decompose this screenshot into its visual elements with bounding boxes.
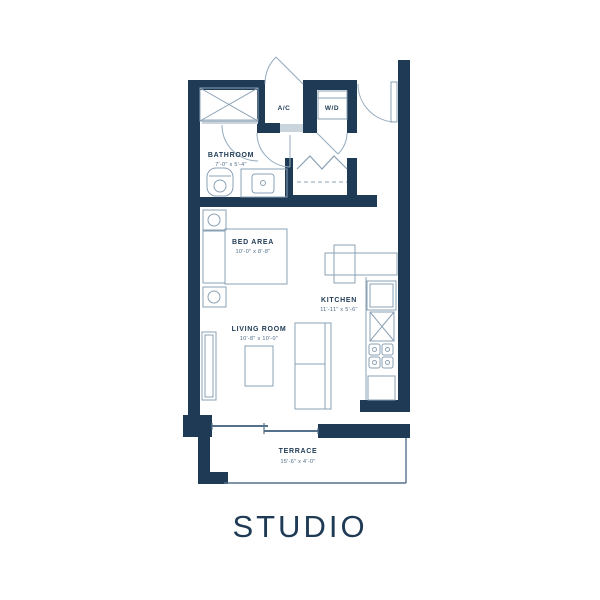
ac-door-leaf xyxy=(276,57,303,84)
kitchen-island xyxy=(325,253,397,275)
tv-console-inner xyxy=(205,335,213,397)
closet-hanging-rod xyxy=(297,156,347,169)
terrace-dims: 15'-6" x 4'-0" xyxy=(281,459,316,465)
bed-area-dims: 10'-0" x 8'-8" xyxy=(236,249,271,255)
wall-terrace-foot xyxy=(210,472,228,484)
wall-kitchen-stub xyxy=(360,400,410,412)
vanity-drain xyxy=(261,181,266,186)
bed-headboard xyxy=(203,231,225,283)
burner-1 xyxy=(369,344,380,355)
burner-2 xyxy=(382,344,393,355)
floorplan-page: BATHROOM 7'-0" x 5'-4" A/C W/D BED AREA … xyxy=(0,0,600,600)
floorplan-drawing: BATHROOM 7'-0" x 5'-4" A/C W/D BED AREA … xyxy=(0,0,600,600)
burner-4 xyxy=(382,357,393,368)
bathroom-fixtures xyxy=(200,88,287,197)
wall-closet-bottom-run xyxy=(285,195,377,207)
fridge xyxy=(367,281,396,310)
fridge-inner xyxy=(370,284,393,307)
entry-door-arc xyxy=(358,84,396,122)
kitchen-label: KITCHEN xyxy=(321,297,357,304)
base-cabinet xyxy=(368,376,395,400)
wall-left xyxy=(188,80,200,420)
nightstand-top xyxy=(203,210,226,230)
kitchen-island-cross xyxy=(334,245,355,283)
bathroom-label: BATHROOM xyxy=(208,152,254,159)
coffee-table xyxy=(245,346,273,386)
ac-door-arc xyxy=(265,57,276,84)
wall-right xyxy=(398,60,410,412)
kitchen-fixtures xyxy=(325,245,397,400)
entry-door-leaf xyxy=(391,82,397,122)
nightstand-top-lamp xyxy=(208,214,220,226)
burner-4-ring xyxy=(386,361,390,365)
wd-door-arc xyxy=(338,133,347,154)
living-room-dims: 10'-8" x 10'-0" xyxy=(240,336,278,342)
wd-closet-label: W/D xyxy=(325,105,339,112)
toilet-bowl xyxy=(214,180,226,192)
bed-area-label: BED AREA xyxy=(232,239,274,246)
wall-closet-right xyxy=(347,158,357,205)
wall-terrace-left xyxy=(198,437,210,484)
tv-console xyxy=(202,332,216,400)
nightstand-bottom-lamp xyxy=(208,291,220,303)
wall-ac-wd-divider xyxy=(303,80,317,133)
threshold-ac xyxy=(280,124,303,132)
wd-door-leaf xyxy=(317,133,338,154)
wall-wd-right-post xyxy=(347,80,357,133)
bed-furniture xyxy=(203,210,287,307)
wall-bathroom-bed xyxy=(188,197,293,207)
bed-mattress xyxy=(225,229,287,284)
wall-bottom-right xyxy=(318,424,410,438)
kitchen-dims: 11'-11" x 5'-6" xyxy=(320,307,358,313)
burner-3-ring xyxy=(373,361,377,365)
vanity-sink xyxy=(252,174,274,193)
page-title: STUDIO xyxy=(232,509,367,544)
ac-closet-label: A/C xyxy=(278,105,291,112)
burner-1-ring xyxy=(373,348,377,352)
nightstand-bottom xyxy=(203,287,226,307)
bathroom-dims: 7'-0" x 5'-4" xyxy=(215,162,247,168)
wall-corner-block xyxy=(183,415,212,437)
living-room-label: LIVING ROOM xyxy=(232,326,287,333)
terrace-label: TERRACE xyxy=(279,448,318,455)
burner-2-ring xyxy=(386,348,390,352)
sofa xyxy=(295,323,331,409)
wall-ac-bottom xyxy=(257,123,280,133)
burner-3 xyxy=(369,357,380,368)
